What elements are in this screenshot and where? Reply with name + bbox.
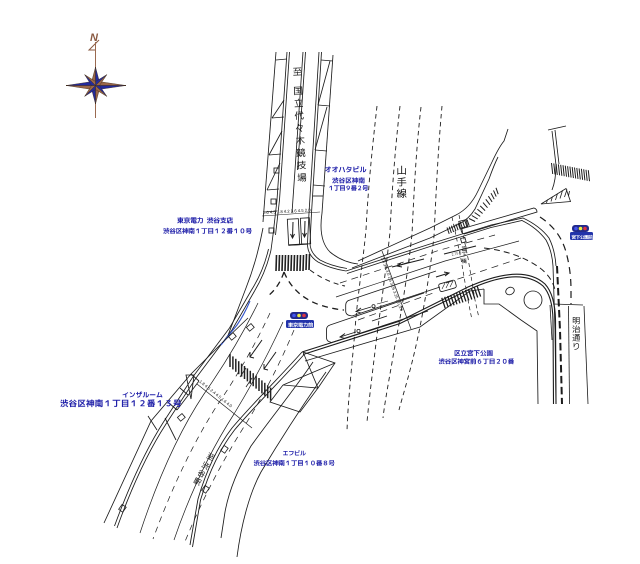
svg-text:N: N bbox=[90, 32, 99, 44]
